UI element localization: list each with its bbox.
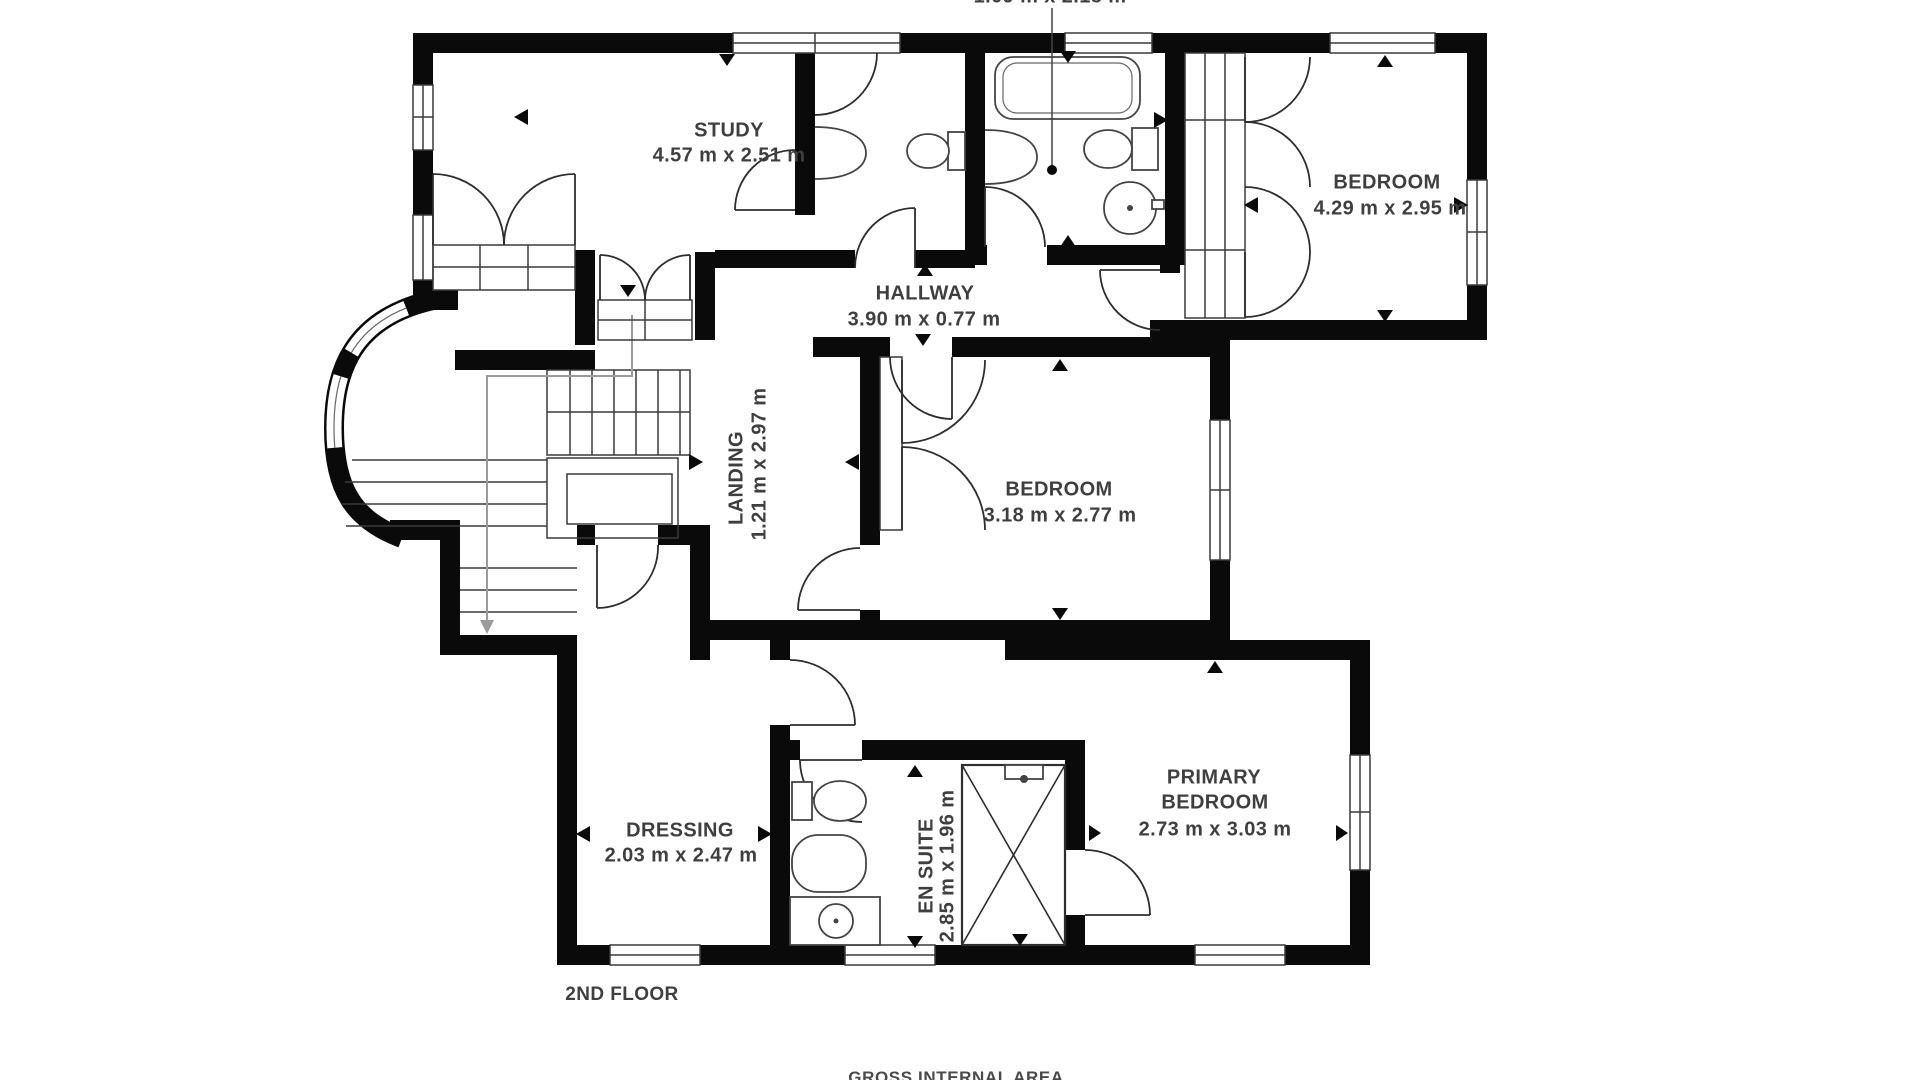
door-primary-ensuite xyxy=(1085,850,1150,915)
window xyxy=(413,85,433,150)
wardrobe-doors-top-right xyxy=(1245,57,1310,317)
study-closet xyxy=(433,174,575,290)
hallway-label: HALLWAY xyxy=(876,283,975,306)
sink xyxy=(815,127,866,179)
floor-plan-drawing xyxy=(0,0,1920,1080)
round-basin xyxy=(1104,182,1164,234)
toilet xyxy=(792,781,866,821)
landing-dims: 1.21 m x 2.97 m xyxy=(749,388,772,541)
window xyxy=(1210,420,1230,560)
bedroom-top-right-label: BEDROOM xyxy=(1333,172,1440,195)
landing-label: LANDING xyxy=(726,431,749,525)
door-middle-bedroom xyxy=(890,357,952,419)
door-corridor xyxy=(597,545,658,608)
study-label: STUDY xyxy=(694,120,764,143)
bedroom-top-right-dims: 4.29 m x 2.95 m xyxy=(1314,198,1467,221)
bedroom-closet-strip xyxy=(1185,53,1245,318)
window xyxy=(845,945,935,965)
shower-corner xyxy=(815,53,877,115)
primary-bedroom-dims: 2.73 m x 3.03 m xyxy=(1139,819,1292,842)
door-bathroom xyxy=(985,187,1045,247)
primary-bedroom-label-line1: PRIMARY xyxy=(1167,767,1261,790)
window xyxy=(413,215,433,280)
bay-window xyxy=(334,300,433,538)
bidet xyxy=(792,835,866,892)
dressing-dims: 2.03 m x 2.47 m xyxy=(605,845,758,868)
dimension-markers xyxy=(514,51,1468,948)
door-primary xyxy=(790,660,855,725)
bedroom-middle-label: BEDROOM xyxy=(1005,479,1112,502)
footer-caption: GROSS INTERNAL AREA xyxy=(848,1068,1063,1080)
primary-bedroom-label-line2: BEDROOM xyxy=(1161,792,1268,815)
window xyxy=(733,33,900,53)
toilet xyxy=(1084,128,1158,170)
hallway-dims: 3.90 m x 0.77 m xyxy=(848,309,1001,332)
vanity-sink xyxy=(790,897,880,945)
dressing-label: DRESSING xyxy=(626,820,734,843)
en-suite-dims: 2.85 m x 1.96 m xyxy=(937,790,960,943)
floor-plan-canvas: 1.09 m x 2.18 m STUDY 4.57 m x 2.51 m BE… xyxy=(0,0,1920,1080)
bathroom-dims: 1.09 m x 2.18 m xyxy=(974,0,1127,9)
floor-title: 2ND FLOOR xyxy=(565,984,678,1006)
en-suite-label: EN SUITE xyxy=(916,818,939,913)
window xyxy=(1065,33,1152,53)
window xyxy=(610,945,700,965)
bedroom-middle-dims: 3.18 m x 2.77 m xyxy=(984,505,1137,528)
door-landing-bedroom xyxy=(798,548,860,610)
shower xyxy=(962,765,1065,945)
toilet xyxy=(907,132,965,170)
study-dims: 4.57 m x 2.51 m xyxy=(653,145,806,168)
landing-closet xyxy=(598,255,692,340)
sink xyxy=(985,130,1037,184)
window xyxy=(1467,180,1487,285)
door-wc xyxy=(855,208,915,268)
bathtub xyxy=(995,57,1140,119)
window xyxy=(1350,755,1370,870)
window xyxy=(1330,33,1435,53)
window xyxy=(1195,945,1285,965)
